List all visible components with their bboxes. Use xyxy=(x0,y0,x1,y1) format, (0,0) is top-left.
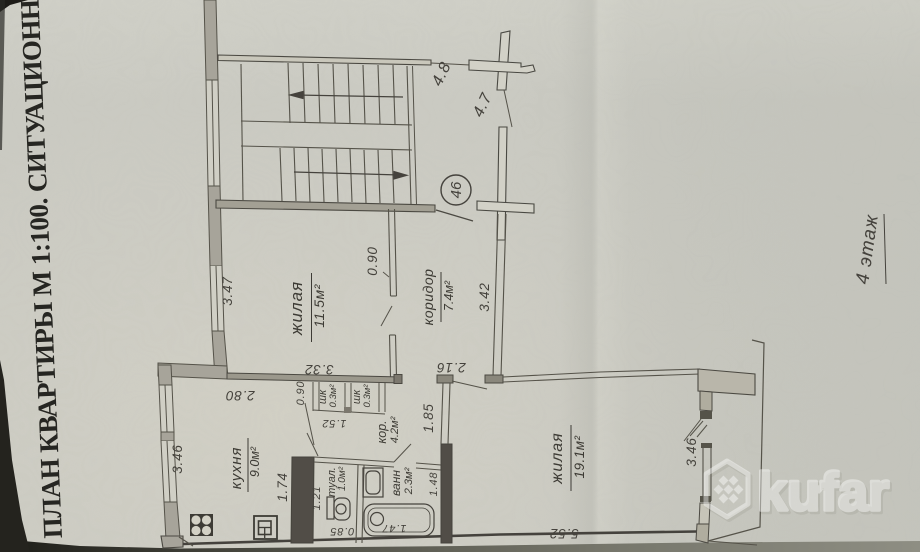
svg-text:2.3м²: 2.3м² xyxy=(403,467,415,495)
svg-text:11.5м²: 11.5м² xyxy=(311,283,327,327)
svg-text:жилая: жилая xyxy=(549,432,566,484)
svg-text:3.32: 3.32 xyxy=(304,362,333,377)
svg-text:1.85: 1.85 xyxy=(421,403,436,432)
svg-text:коридор: коридор xyxy=(420,269,436,326)
svg-text:4.2м²: 4.2м² xyxy=(389,416,401,443)
svg-text:1.52: 1.52 xyxy=(322,417,347,429)
svg-text:19.1м²: 19.1м² xyxy=(572,435,587,478)
svg-text:2.16: 2.16 xyxy=(436,360,466,375)
svg-text:кухня: кухня xyxy=(228,447,245,489)
svg-text:9.0м²: 9.0м² xyxy=(248,446,262,477)
svg-text:0.3м²: 0.3м² xyxy=(362,384,373,408)
svg-text:кор.: кор. xyxy=(375,420,389,443)
svg-text:0.85: 0.85 xyxy=(330,525,355,537)
svg-text:0.90: 0.90 xyxy=(295,381,307,406)
svg-text:1.21: 1.21 xyxy=(311,486,323,511)
svg-text:5.52: 5.52 xyxy=(549,526,578,541)
svg-text:0.3м²: 0.3м² xyxy=(328,384,339,408)
svg-text:1.48: 1.48 xyxy=(428,472,440,497)
svg-text:3.46: 3.46 xyxy=(170,444,185,473)
svg-text:1.74: 1.74 xyxy=(275,472,290,501)
svg-text:kufar: kufar xyxy=(757,462,889,522)
svg-text:46: 46 xyxy=(448,181,465,198)
svg-text:3.46: 3.46 xyxy=(684,437,699,466)
svg-text:2.80: 2.80 xyxy=(225,388,255,403)
svg-text:3.42: 3.42 xyxy=(477,282,492,311)
svg-text:7.4м²: 7.4м² xyxy=(442,280,456,311)
svg-text:жилая: жилая xyxy=(287,281,306,336)
svg-text:3.47: 3.47 xyxy=(220,276,235,305)
svg-text:1.47: 1.47 xyxy=(382,522,407,534)
svg-text:ванн: ванн xyxy=(389,470,403,496)
svg-text:1.0м²: 1.0м² xyxy=(337,466,348,491)
svg-text:0.90: 0.90 xyxy=(365,246,380,275)
